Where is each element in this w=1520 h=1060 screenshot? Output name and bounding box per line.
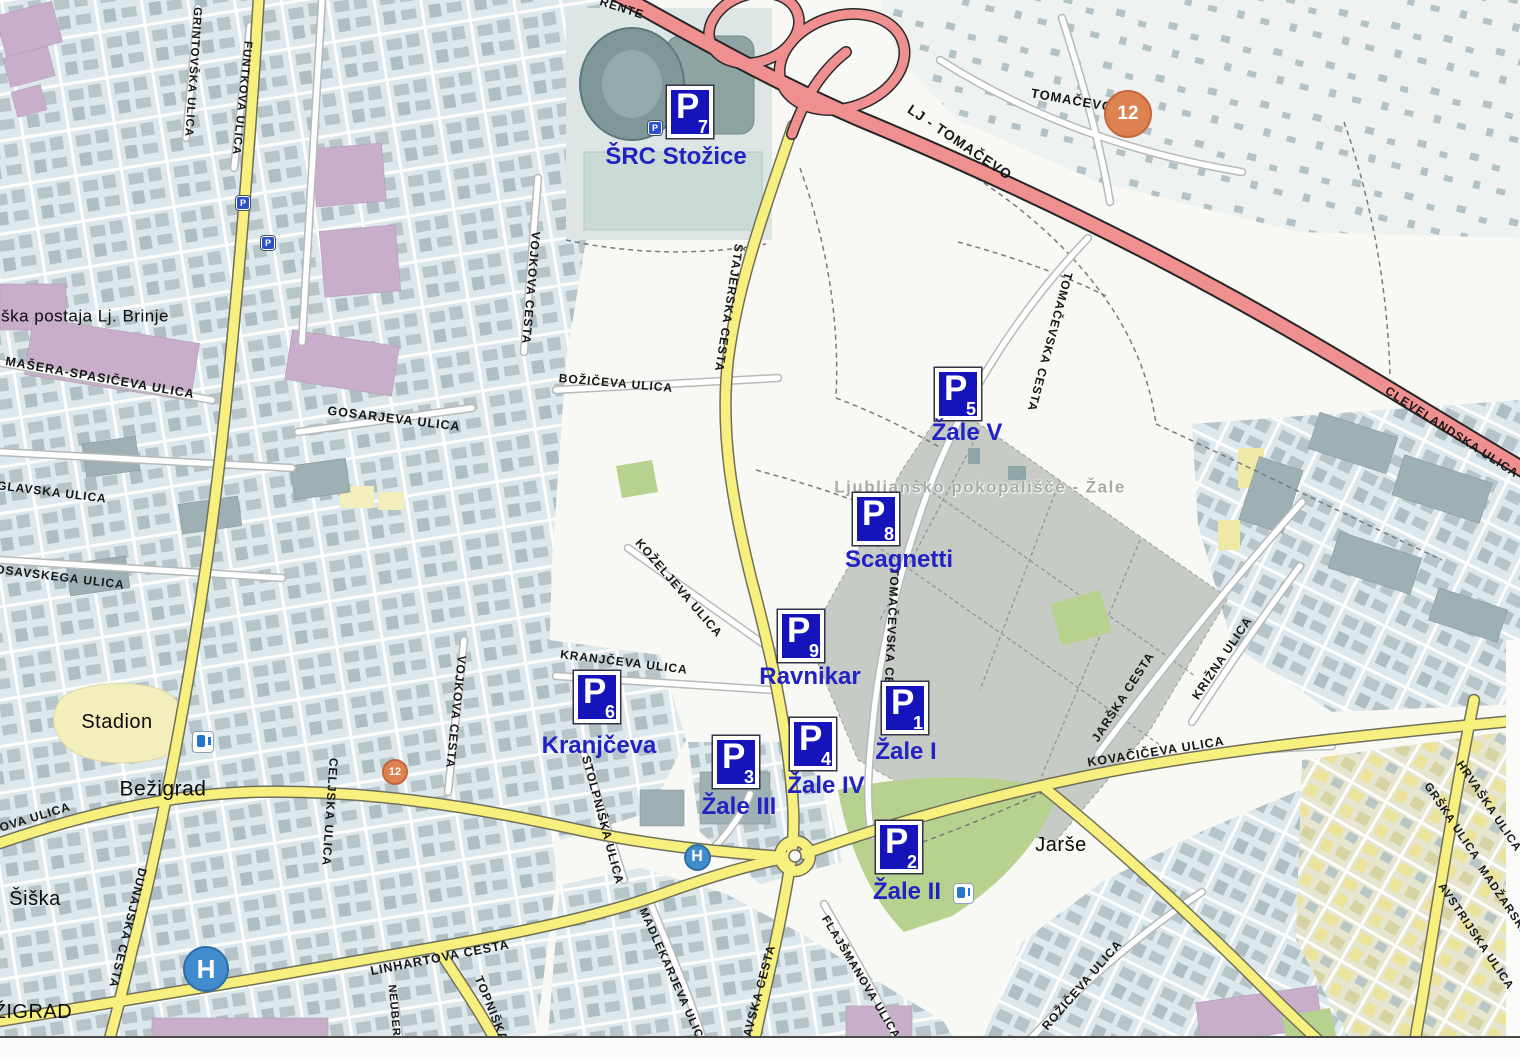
- parking-number: 3: [744, 768, 754, 786]
- parking-sign: P6: [574, 671, 620, 723]
- parking-caption-p1: Žale I: [875, 740, 936, 764]
- parking-sign: P2: [876, 821, 922, 873]
- parking-marker-p3[interactable]: P3: [713, 736, 759, 788]
- parking-marker-p1[interactable]: P1: [882, 682, 928, 734]
- parking-number: 1: [913, 714, 923, 732]
- parking-marker-p2[interactable]: P2: [876, 821, 922, 873]
- parking-number: 7: [698, 118, 708, 136]
- parking-caption-p4: Žale IV: [787, 774, 864, 798]
- parking-marker-p8[interactable]: P8: [853, 493, 899, 545]
- parking-number: 5: [966, 400, 976, 418]
- map-border-strip: [0, 1036, 1520, 1060]
- parking-letter: P: [885, 823, 908, 862]
- parking-number: 2: [907, 853, 917, 871]
- parking-letter: P: [583, 673, 606, 712]
- parking-caption-p7: ŠRC Stožice: [605, 145, 746, 169]
- parking-sign: P5: [935, 368, 981, 420]
- parking-number: 9: [809, 642, 819, 660]
- parking-sign: P3: [713, 736, 759, 788]
- parking-sign: P4: [790, 718, 836, 770]
- parking-letter: P: [944, 370, 967, 409]
- parking-number: 6: [605, 703, 615, 721]
- parking-marker-p9[interactable]: P9: [778, 610, 824, 662]
- parking-marker-p7[interactable]: P7: [667, 86, 713, 138]
- parking-caption-p8: Scagnetti: [845, 548, 953, 572]
- parking-letter: P: [862, 495, 885, 534]
- parking-caption-p5: Žale V: [932, 421, 1003, 445]
- parking-letter: P: [676, 88, 699, 127]
- parking-sign: P7: [667, 86, 713, 138]
- parking-sign: P9: [778, 610, 824, 662]
- parking-letter: P: [787, 612, 810, 651]
- parking-caption-p6: Kranjčeva: [542, 734, 657, 758]
- parking-caption-p9: Ravnikar: [759, 665, 860, 689]
- markers-layer: P7ŠRC StožiceP5Žale VP8ScagnettiP9Ravnik…: [0, 0, 1520, 1036]
- parking-number: 8: [884, 525, 894, 543]
- parking-sign: P8: [853, 493, 899, 545]
- parking-caption-p3: Žale III: [702, 795, 777, 819]
- parking-marker-p5[interactable]: P5: [935, 368, 981, 420]
- parking-marker-p4[interactable]: P4: [790, 718, 836, 770]
- parking-number: 4: [821, 750, 831, 768]
- parking-marker-p6[interactable]: P6: [574, 671, 620, 723]
- parking-caption-p2: Žale II: [873, 880, 941, 904]
- map-viewport[interactable]: RENTEGRINTOVŠKA ULICAFUNTKOVA ULICAMAŠER…: [0, 0, 1520, 1060]
- parking-sign: P1: [882, 682, 928, 734]
- parking-letter: P: [722, 738, 745, 777]
- parking-letter: P: [799, 720, 822, 759]
- parking-letter: P: [891, 684, 914, 723]
